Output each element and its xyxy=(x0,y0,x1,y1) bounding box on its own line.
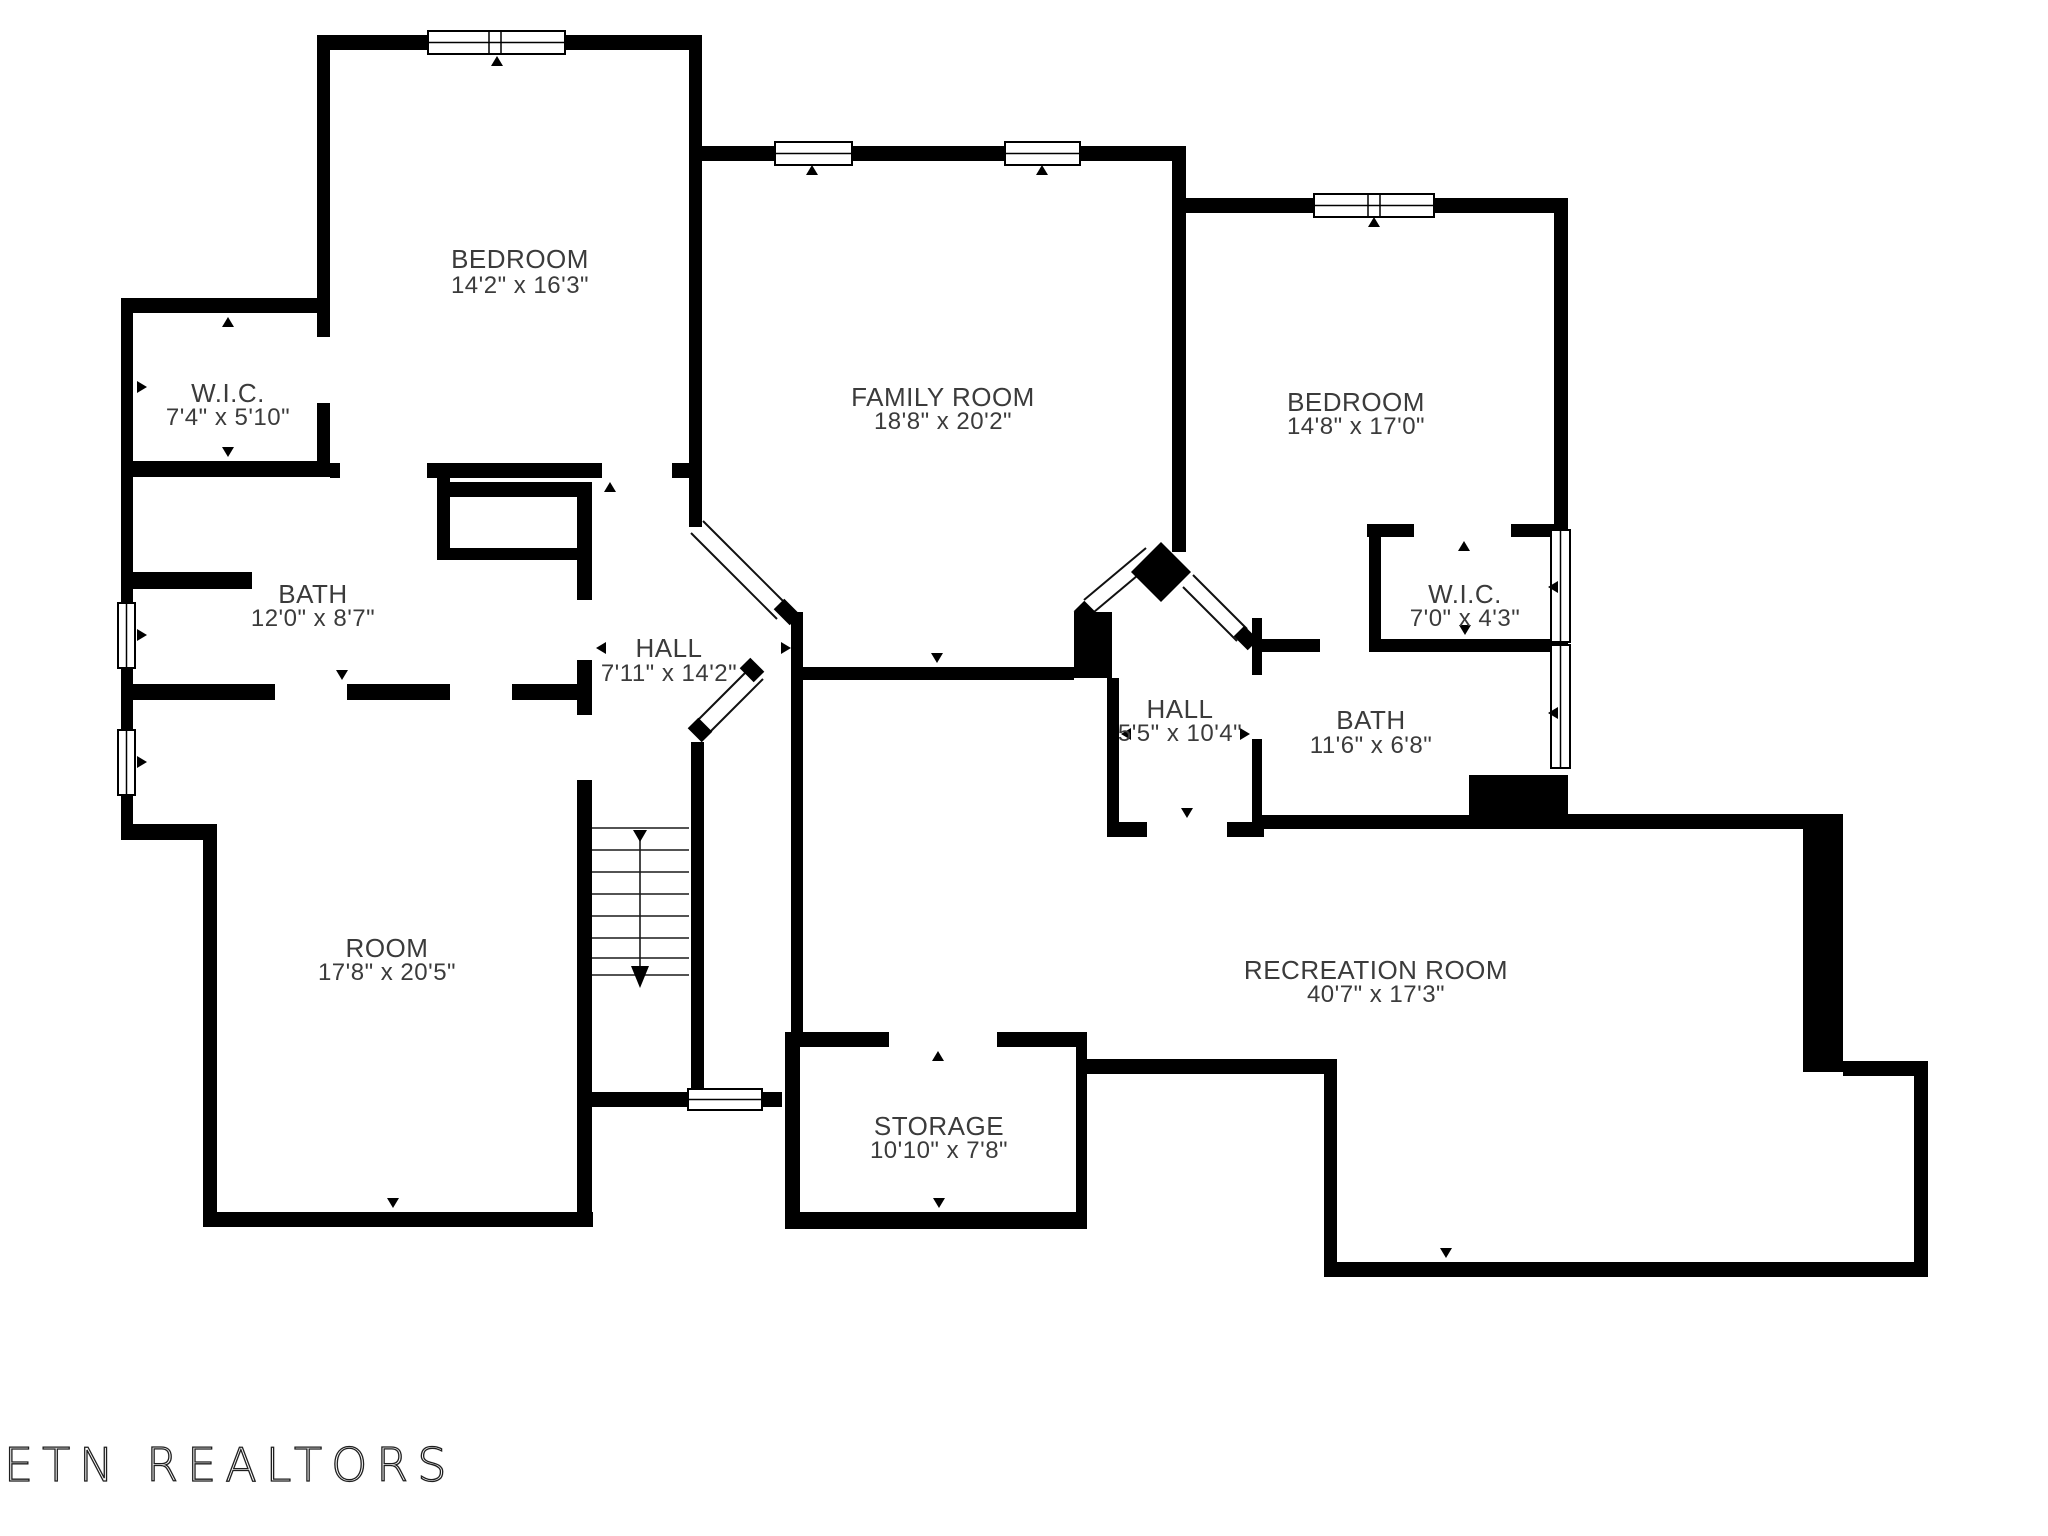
room-dims-wic-left: 7'4" x 5'10" xyxy=(166,404,290,431)
wall-segment xyxy=(760,1092,782,1107)
room-dims-hall-left: 7'11" x 14'2" xyxy=(601,660,737,687)
wall-segment xyxy=(565,35,702,50)
wall-segment xyxy=(1076,1032,1087,1229)
wall-segment xyxy=(689,35,702,527)
wall-segment xyxy=(577,780,592,1227)
wall-segment xyxy=(1227,822,1264,837)
room-label-bedroom-left: BEDROOM xyxy=(451,244,589,274)
room-dims-bath-left: 12'0" x 8'7" xyxy=(251,605,375,632)
wall-segment xyxy=(852,146,1005,161)
realtor-logo: ETN REALTORS xyxy=(4,1438,455,1492)
wall-segment xyxy=(1324,1262,1928,1277)
room-dims-recreation-room: 40'7" x 17'3" xyxy=(1307,981,1445,1008)
wall-segment xyxy=(1914,1061,1928,1277)
wall-segment xyxy=(1172,198,1314,213)
wall-segment xyxy=(791,612,803,1032)
floor-plan-drawing: BEDROOM 14'2" x 16'3" W.I.C. 7'4" x 5'10… xyxy=(0,0,2048,1536)
wall-segment xyxy=(330,463,340,478)
wall-segment xyxy=(121,461,330,477)
room-dims-wic-right: 7'0" x 4'3" xyxy=(1410,605,1520,632)
staircase xyxy=(592,828,689,988)
wall-stub xyxy=(1079,606,1091,618)
wall-segment xyxy=(702,146,775,161)
wall-segment xyxy=(427,463,602,478)
dimension-tick-icon xyxy=(1458,541,1470,551)
dimension-tick-icon xyxy=(781,642,791,654)
wall-segment xyxy=(785,1032,800,1229)
wall-segment xyxy=(347,684,450,700)
dimension-tick-icon xyxy=(387,1198,399,1208)
wall-stub xyxy=(779,604,795,620)
wall-segment xyxy=(1087,1059,1337,1074)
wall-segment xyxy=(1262,815,1469,829)
wall-segment xyxy=(317,403,330,477)
wall-segment xyxy=(512,684,592,700)
dimension-tick-icon xyxy=(604,482,616,492)
walls xyxy=(121,35,1928,1277)
window xyxy=(1551,645,1570,768)
dimension-tick-icon xyxy=(596,642,606,654)
door-opening xyxy=(708,679,763,734)
wall-segment xyxy=(121,684,275,700)
door-opening xyxy=(703,521,789,607)
wall-segment xyxy=(1252,739,1262,822)
wall-segment xyxy=(1324,1059,1337,1277)
wall-segment xyxy=(785,1032,889,1047)
room-dims-bedroom-right: 14'8" x 17'0" xyxy=(1287,413,1425,440)
wall-segment xyxy=(1568,814,1843,829)
window xyxy=(118,603,135,668)
floor-plan-canvas: BEDROOM 14'2" x 16'3" W.I.C. 7'4" x 5'10… xyxy=(0,0,2048,1536)
dimension-ticks xyxy=(137,56,1558,1258)
windows xyxy=(118,31,1570,1110)
door-opening xyxy=(691,533,777,619)
window xyxy=(688,1089,762,1110)
dimension-tick-icon xyxy=(1036,165,1048,175)
wall-stub xyxy=(1239,631,1253,645)
wall-segment xyxy=(691,742,704,1107)
dimension-tick-icon xyxy=(931,653,943,663)
room-dims-room: 17'8" x 20'5" xyxy=(318,959,456,986)
room-dims-bedroom-left: 14'2" x 16'3" xyxy=(451,272,589,299)
dimension-tick-icon xyxy=(1181,808,1193,818)
window xyxy=(1005,142,1080,165)
door-opening xyxy=(1193,575,1247,629)
window xyxy=(1314,194,1434,217)
wall-segment xyxy=(803,667,1074,680)
dimension-tick-icon xyxy=(1440,1248,1452,1258)
room-dims-family-room: 18'8" x 20'2" xyxy=(874,408,1012,435)
wall-segment xyxy=(1080,146,1186,161)
stair-arrow-icon xyxy=(631,966,649,988)
wall-segment xyxy=(997,1032,1087,1047)
wall-stub xyxy=(693,723,707,737)
wall-segment xyxy=(1107,678,1119,822)
wall-segment xyxy=(592,1092,690,1107)
wall-segment xyxy=(1434,198,1568,213)
dimension-tick-icon xyxy=(932,1051,944,1061)
room-dims-hall-right: 5'5" x 10'4" xyxy=(1118,720,1242,747)
dimension-tick-icon xyxy=(137,756,147,768)
wall-stub xyxy=(745,663,759,677)
wall-segment xyxy=(799,1212,1087,1229)
wall-segment xyxy=(317,35,428,50)
room-label-hall-left: HALL xyxy=(635,633,702,663)
wall-segment xyxy=(203,1212,593,1227)
dimension-tick-icon xyxy=(933,1198,945,1208)
wall-segment xyxy=(1252,618,1262,675)
wall-segment xyxy=(437,482,592,497)
wall-segment xyxy=(577,482,592,600)
room-dims-storage: 10'10" x 7'8" xyxy=(870,1137,1008,1164)
window xyxy=(775,142,852,165)
wall-segment xyxy=(1262,639,1320,652)
wall-segment xyxy=(317,298,330,337)
dimension-tick-icon xyxy=(491,56,503,66)
wall-segment xyxy=(1369,639,1568,652)
wall-segment xyxy=(133,572,252,589)
wall-segment xyxy=(1469,775,1568,829)
dimension-tick-icon xyxy=(137,381,147,393)
wall-segment xyxy=(1074,612,1112,678)
wall-segment xyxy=(1369,524,1381,652)
door-opening xyxy=(1183,587,1237,641)
wall-segment xyxy=(1107,822,1147,837)
room-labels: BEDROOM 14'2" x 16'3" W.I.C. 7'4" x 5'10… xyxy=(166,244,1520,1164)
window xyxy=(118,730,135,795)
wall-segment xyxy=(121,298,330,313)
dimension-tick-icon xyxy=(1368,217,1380,227)
wall-segment xyxy=(1803,829,1843,1072)
wall-segment xyxy=(121,824,217,840)
room-label-bath-right: BATH xyxy=(1336,705,1405,735)
wall-segment xyxy=(450,548,580,560)
wall-segment xyxy=(1554,198,1568,530)
dimension-tick-icon xyxy=(222,317,234,327)
wall-segment xyxy=(437,477,450,560)
window xyxy=(428,31,565,54)
dimension-tick-icon xyxy=(137,629,147,641)
wall-segment xyxy=(121,298,133,603)
wall-segment xyxy=(203,824,217,1227)
room-dims-bath-right: 11'6" x 6'8" xyxy=(1310,732,1433,759)
wall-segment xyxy=(317,35,330,298)
dimension-tick-icon xyxy=(222,447,234,457)
stair-arrow-icon xyxy=(633,830,647,842)
dimension-tick-icon xyxy=(336,670,348,680)
dimension-tick-icon xyxy=(806,165,818,175)
